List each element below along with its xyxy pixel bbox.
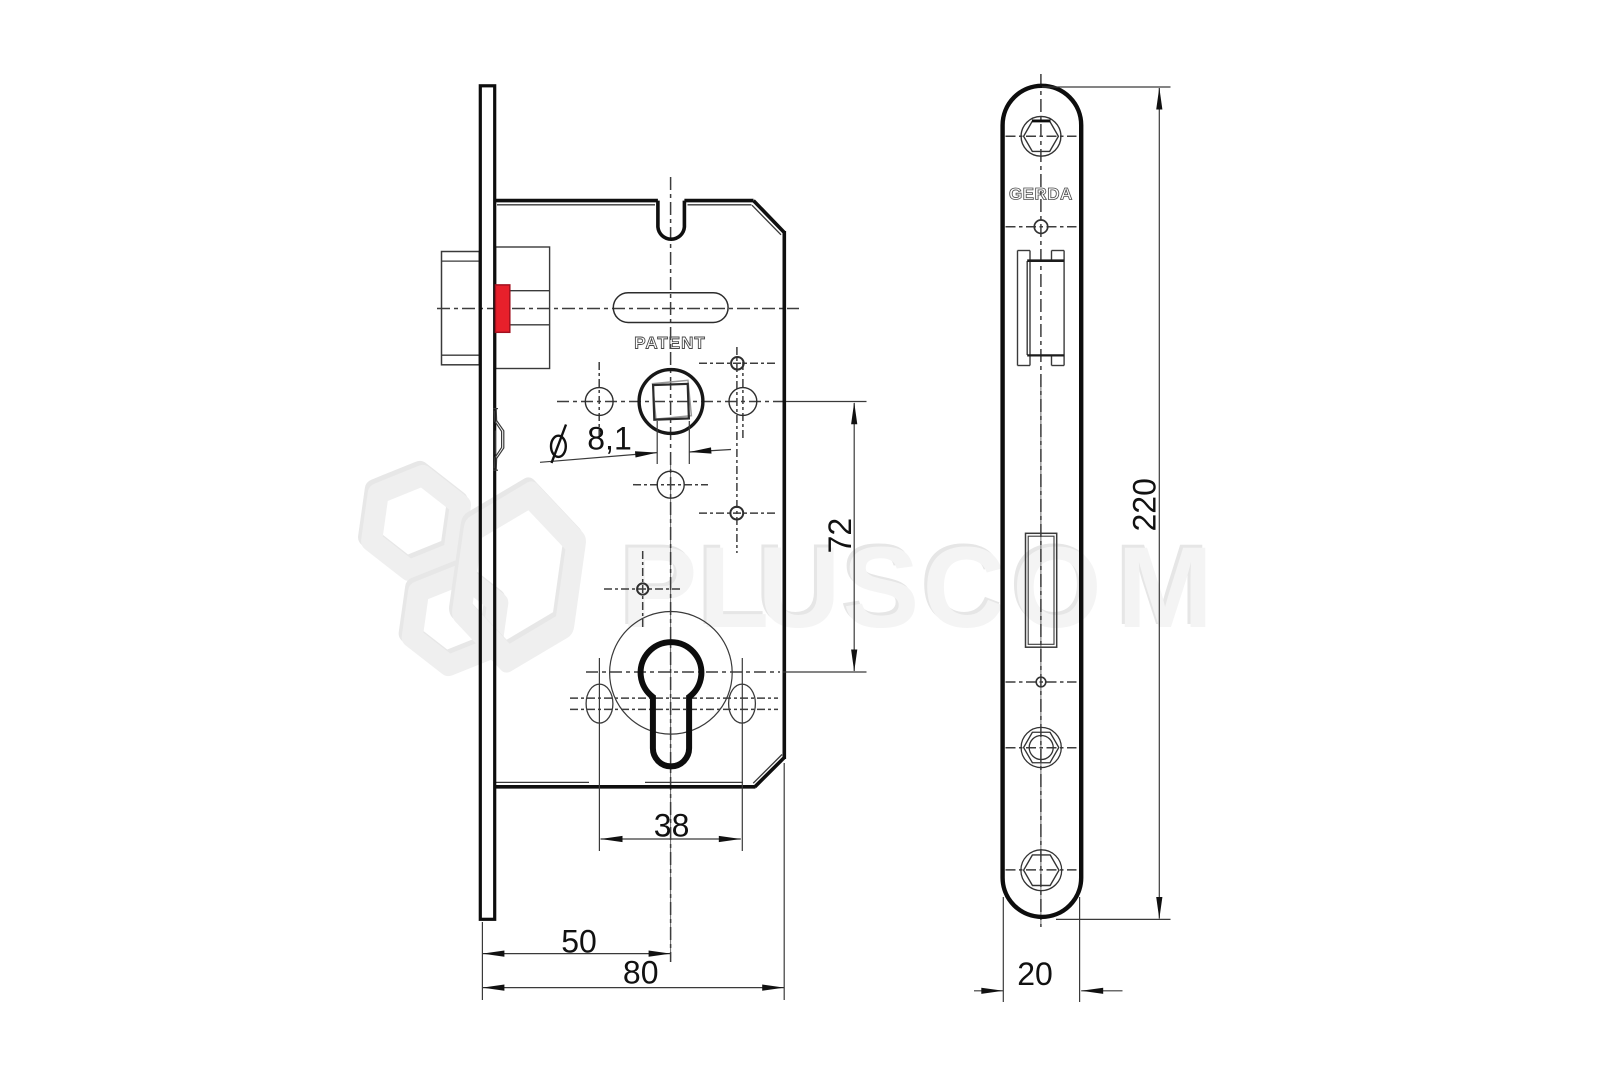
svg-text:38: 38 (654, 808, 690, 844)
svg-text:8,1: 8,1 (587, 421, 631, 457)
svg-text:P: P (621, 524, 698, 652)
svg-text:PATENT: PATENT (634, 334, 705, 353)
svg-text:80: 80 (623, 955, 659, 991)
svg-text:M: M (1117, 524, 1213, 652)
svg-text:20: 20 (1017, 956, 1053, 992)
svg-text:50: 50 (561, 924, 597, 960)
svg-text:220: 220 (1127, 478, 1163, 531)
svg-text:72: 72 (822, 518, 858, 554)
svg-text:C: C (922, 524, 1005, 652)
svg-text:GERDA: GERDA (1009, 184, 1073, 203)
